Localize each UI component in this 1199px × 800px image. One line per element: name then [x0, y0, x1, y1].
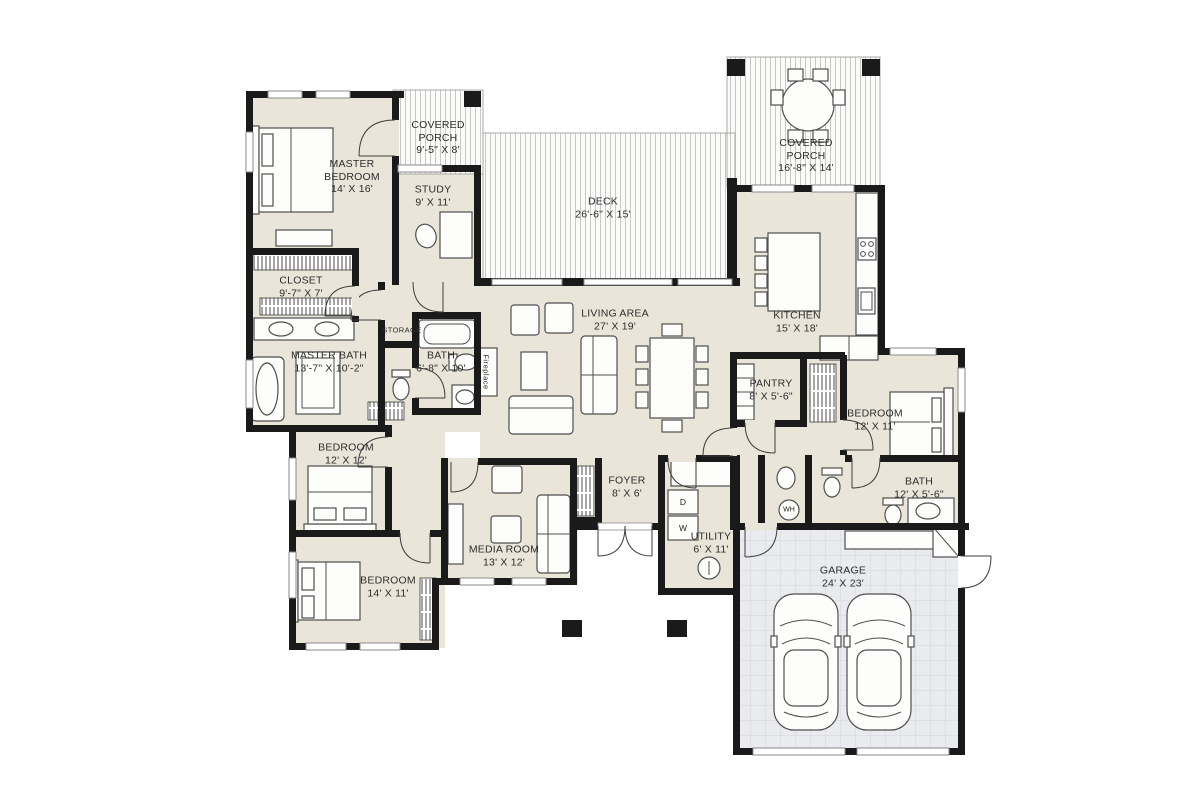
bedroom-right-furniture — [890, 388, 953, 458]
deck-floor — [483, 133, 735, 285]
bath-right-fixtures — [883, 498, 954, 525]
car-left — [771, 594, 841, 730]
floor-plan-drawing — [0, 0, 1199, 800]
floor-plan-canvas: MASTER BEDROOM 14' X 16' STUDY 9' X 11' … — [0, 0, 1199, 800]
car-right — [844, 594, 914, 730]
bedroom-mid-furniture — [304, 466, 376, 531]
